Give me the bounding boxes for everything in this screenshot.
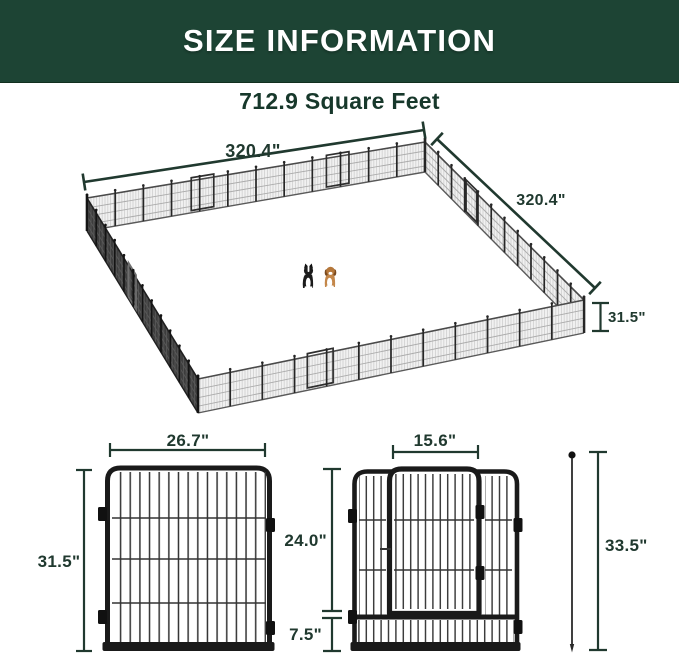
panel-connector-tab xyxy=(514,518,523,532)
door-panel-bottom-rail xyxy=(351,642,521,651)
ground-stake-figure: 33.5" xyxy=(568,451,647,652)
door-width-dimension: 15.6" xyxy=(393,431,478,459)
panel-width-label: 26.7" xyxy=(167,431,210,450)
fence-wall xyxy=(86,194,200,414)
door-height-label: 24.0" xyxy=(284,531,327,550)
panel-bottom-rail xyxy=(103,642,275,651)
door-width-label: 15.6" xyxy=(414,431,457,450)
bottom-section-height-label: 7.5" xyxy=(289,625,322,644)
dogs-illustration xyxy=(303,264,337,289)
fence-wall xyxy=(424,138,586,334)
panel-connector-tab xyxy=(266,621,275,635)
panel-connector-tab xyxy=(514,620,523,634)
door-height-dimension: 24.0" 7.5" xyxy=(284,469,342,651)
door-panel-figure: 15.6" 24.0" 7.5" xyxy=(284,431,522,651)
pen-right-width-dimension: 320.4" xyxy=(431,133,601,294)
size-diagram: 320.4" 320.4" 31.5" xyxy=(0,0,679,655)
panel-height-label: 31.5" xyxy=(38,552,81,571)
stake-point xyxy=(570,644,574,653)
door-hinge xyxy=(476,566,485,580)
panel-connector-tab xyxy=(348,610,357,624)
stake-height-dimension: 33.5" xyxy=(589,452,648,650)
panel-connector-tab xyxy=(348,509,357,523)
pen-fence-height-dimension: 31.5" xyxy=(592,303,646,331)
panel-connector-tab xyxy=(98,610,107,624)
single-panel-figure: 26.7" 31.5" xyxy=(38,431,275,651)
panel-connector-tab xyxy=(266,518,275,532)
panel-height-dimension: 31.5" xyxy=(38,470,92,651)
fence-wall xyxy=(197,296,586,414)
stake-height-label: 33.5" xyxy=(605,536,648,555)
panel-connector-tab xyxy=(98,507,107,521)
panel-width-dimension: 26.7" xyxy=(110,431,265,457)
beagle-icon xyxy=(325,267,337,288)
pen-right-width-label: 320.4" xyxy=(516,192,565,209)
border-collie-icon xyxy=(303,264,313,289)
size-information-page: SIZE INFORMATION 712.9 Square Feet xyxy=(0,0,679,655)
stake-ball-top xyxy=(568,451,575,458)
pen-top-width-label: 320.4" xyxy=(225,141,280,161)
pen-fence-height-label: 31.5" xyxy=(608,309,646,326)
door-hinge xyxy=(476,505,485,519)
